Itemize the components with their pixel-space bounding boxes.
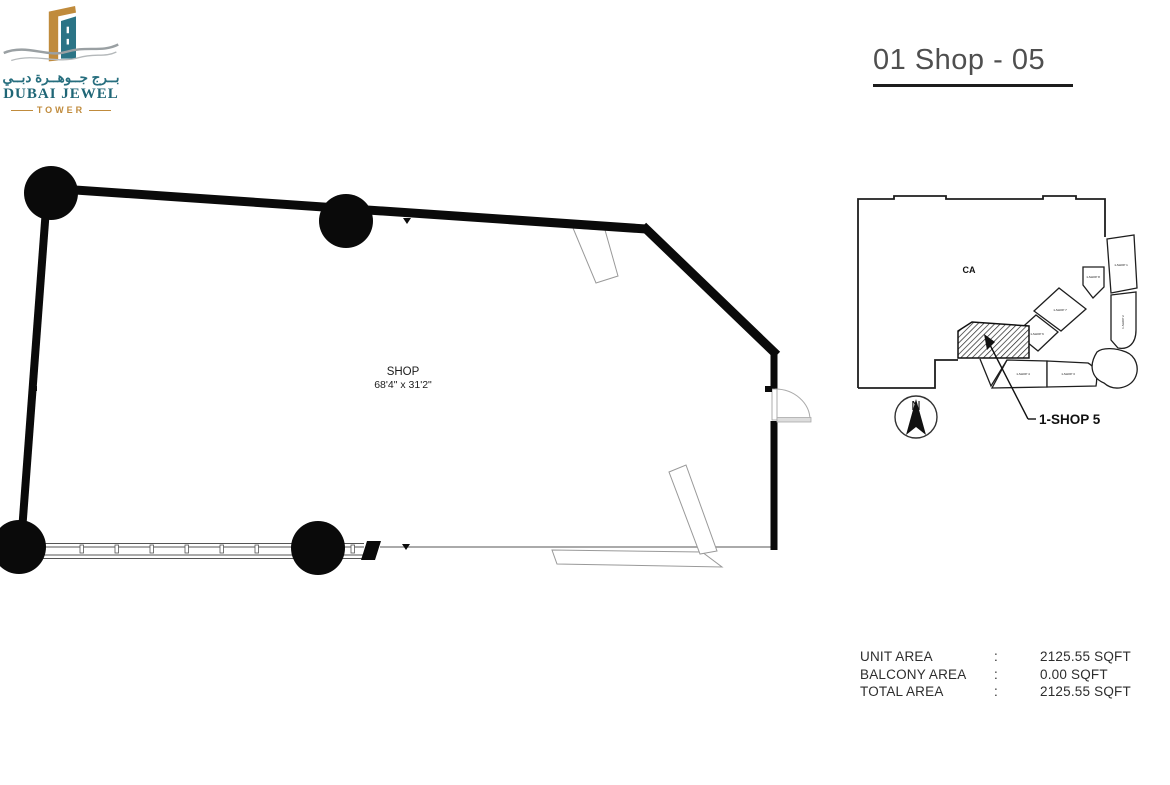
area-row-separator: : (994, 683, 1040, 701)
brand-name-text: DUBAI JEWEL (0, 85, 122, 104)
brand-subtitle: TOWER (0, 105, 122, 115)
door-leaf-detail (573, 228, 618, 283)
area-row-value: 0.00 SQFT (1040, 666, 1131, 684)
unit-title-block: 01 Shop - 05 (873, 44, 1073, 87)
entry-door (765, 386, 811, 422)
room-dimensions: 68'4" x 31'2" (374, 379, 432, 391)
svg-text:1-SHOP 4: 1-SHOP 4 (1016, 372, 1030, 376)
room-label: SHOP (387, 366, 420, 378)
page-title: 01 Shop - 05 (873, 44, 1073, 77)
wall-tick (29, 386, 37, 391)
area-row-value: 2125.55 SQFT (1040, 683, 1131, 701)
main-floor-plan: SHOP 68'4" x 31'2" (0, 150, 830, 630)
highlight-label: 1-SHOP 5 (1039, 412, 1101, 427)
tick-top (403, 218, 411, 224)
svg-text:1-SHOP 8: 1-SHOP 8 (1086, 275, 1100, 279)
gold-rule-right (89, 110, 111, 111)
key-plan: 1-SHOP 1 1-SHOP 2 1-SHOP 3 1-SHOP 4 1-SH… (845, 185, 1155, 465)
brand-arabic-text: بــرج جــوهــرة دبــي (0, 70, 122, 85)
svg-text:1-SHOP 6: 1-SHOP 6 (1030, 332, 1044, 336)
area-summary-table: UNIT AREA : 2125.55 SQFT BALCONY AREA : … (860, 648, 1131, 701)
keyplan-boundary (858, 196, 1105, 388)
area-row-separator: : (994, 666, 1040, 684)
svg-text:1-SHOP 7: 1-SHOP 7 (1053, 308, 1067, 312)
columns (0, 166, 373, 575)
logo-tower-window (67, 39, 69, 45)
tower-logo-icon (0, 4, 122, 70)
svg-text:1-SHOP 2: 1-SHOP 2 (1121, 315, 1125, 329)
area-row-label: UNIT AREA (860, 648, 994, 666)
logo-tower-window (67, 27, 69, 34)
north-arrow (906, 399, 926, 435)
area-row-value: 2125.55 SQFT (1040, 648, 1131, 666)
brand-logo: بــرج جــوهــرة دبــي DUBAI JEWEL TOWER (0, 4, 122, 115)
floor-plan-page: بــرج جــوهــرة دبــي DUBAI JEWEL TOWER … (0, 0, 1170, 785)
area-row-label: TOTAL AREA (860, 683, 994, 701)
ramp-detail (552, 465, 722, 567)
title-underline (873, 84, 1073, 87)
north-compass-icon: N (895, 396, 937, 438)
svg-text:1-SHOP 3: 1-SHOP 3 (1061, 372, 1075, 376)
gold-rule-left (11, 110, 33, 111)
area-row-label: BALCONY AREA (860, 666, 994, 684)
common-area-label: CA (963, 265, 976, 275)
area-row-separator: : (994, 648, 1040, 666)
brand-sub-text: TOWER (37, 105, 85, 115)
svg-text:1-SHOP 1: 1-SHOP 1 (1114, 263, 1128, 267)
